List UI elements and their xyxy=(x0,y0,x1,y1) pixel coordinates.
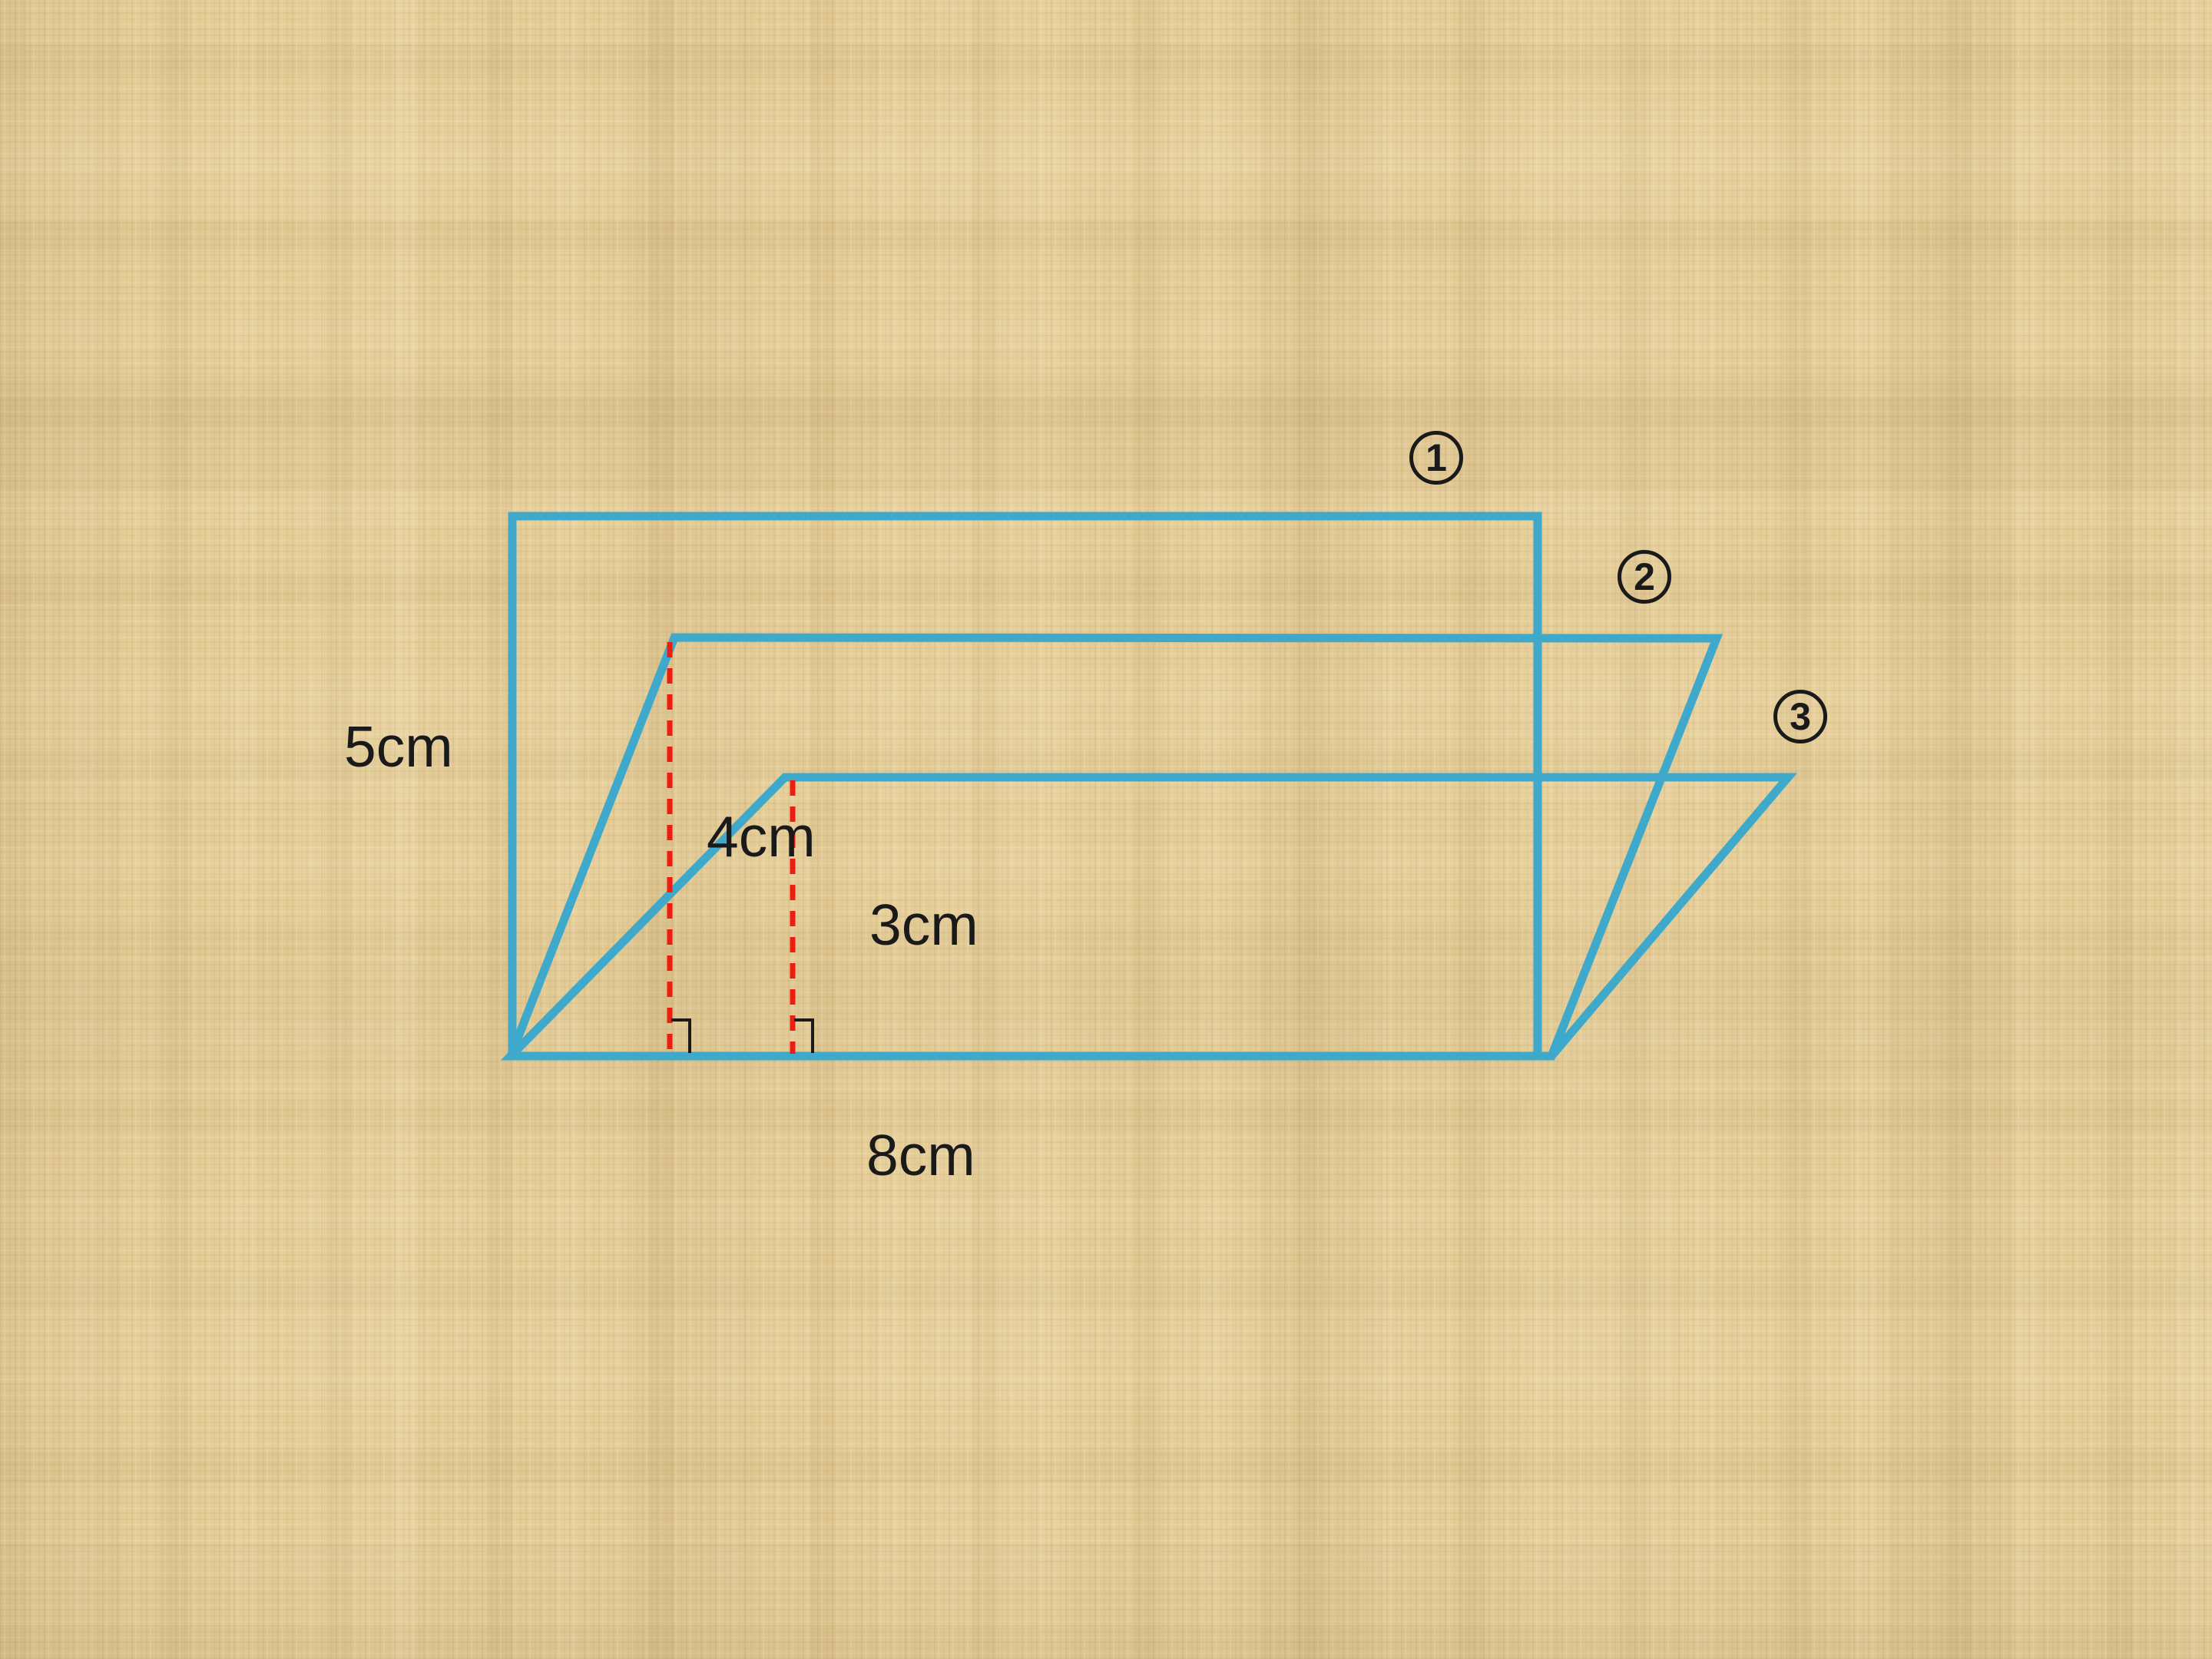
right-angle-mark-2 xyxy=(794,1020,813,1053)
label-height-3cm: 3cm xyxy=(869,896,979,954)
shape-number-1-badge: 1 xyxy=(1409,431,1463,485)
shape-number-1: 1 xyxy=(1426,439,1447,477)
shape-number-2: 2 xyxy=(1634,558,1655,596)
label-height-4cm: 4cm xyxy=(707,808,816,866)
label-side-5cm: 5cm xyxy=(344,718,453,776)
worksheet-canvas: 5cm 4cm 3cm 8cm 1 2 3 xyxy=(0,0,2212,1659)
geometry-figure xyxy=(0,0,2212,1659)
label-base-8cm: 8cm xyxy=(866,1127,975,1184)
shape-number-3-badge: 3 xyxy=(1773,690,1827,743)
parallelogram-3-outline xyxy=(511,777,1788,1056)
right-angle-mark-1 xyxy=(671,1020,690,1053)
rectangle-1-outline xyxy=(512,516,1538,1056)
shape-number-3: 3 xyxy=(1790,697,1811,736)
shape-number-2-badge: 2 xyxy=(1618,550,1671,604)
